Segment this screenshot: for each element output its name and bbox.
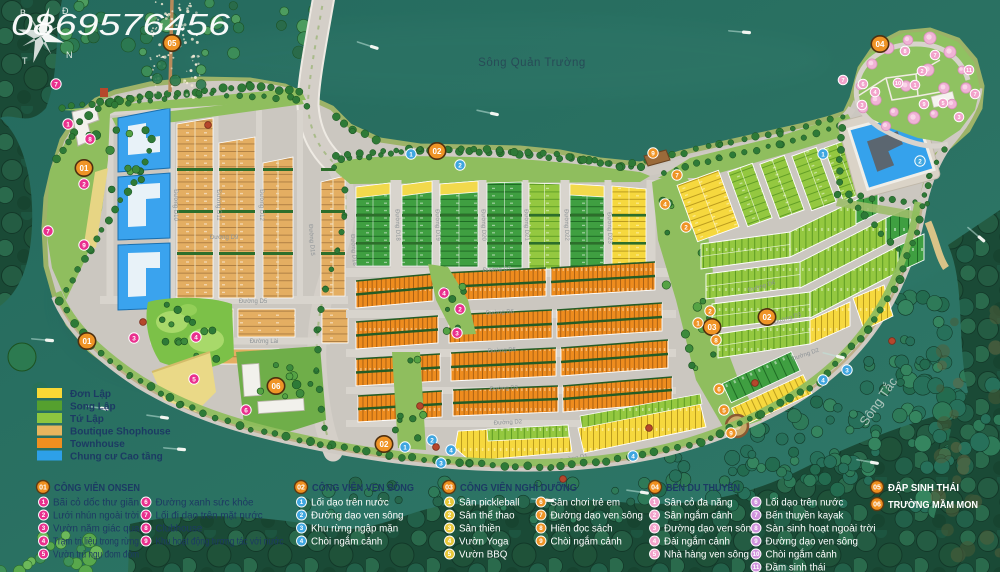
svg-text:3: 3 bbox=[653, 525, 657, 532]
svg-text:Đơn Lập: Đơn Lập bbox=[70, 389, 111, 400]
svg-text:2: 2 bbox=[458, 162, 462, 169]
svg-text:Sân chơi trẻ em: Sân chơi trẻ em bbox=[551, 498, 621, 509]
svg-text:8: 8 bbox=[144, 525, 148, 532]
svg-text:CÔNG VIÊN ONSEN: CÔNG VIÊN ONSEN bbox=[54, 481, 140, 494]
svg-text:8: 8 bbox=[903, 49, 906, 55]
svg-text:Vườn trú ngụ đom đóm: Vườn trú ngụ đom đóm bbox=[53, 550, 139, 561]
svg-text:3: 3 bbox=[957, 115, 960, 121]
svg-text:2: 2 bbox=[300, 512, 304, 519]
svg-text:3: 3 bbox=[455, 330, 459, 337]
svg-text:1: 1 bbox=[653, 499, 657, 506]
svg-text:01: 01 bbox=[80, 164, 89, 173]
svg-text:03: 03 bbox=[445, 485, 453, 492]
svg-text:2: 2 bbox=[918, 158, 922, 165]
svg-text:4: 4 bbox=[300, 538, 304, 545]
svg-text:2: 2 bbox=[653, 512, 657, 519]
svg-text:Đường D9: Đường D9 bbox=[210, 235, 239, 241]
svg-text:Đường D18: Đường D18 bbox=[393, 209, 400, 241]
svg-text:6: 6 bbox=[861, 82, 864, 88]
svg-text:02: 02 bbox=[763, 313, 772, 322]
svg-text:Đường Lài: Đường Lài bbox=[250, 339, 279, 345]
svg-text:Chòi ngắm cảnh: Chòi ngắm cảnh bbox=[551, 537, 622, 548]
svg-text:6: 6 bbox=[244, 407, 248, 414]
svg-text:6: 6 bbox=[539, 499, 543, 506]
svg-text:5: 5 bbox=[448, 551, 452, 558]
svg-text:Đường dạo ven sông: Đường dạo ven sông bbox=[551, 511, 644, 522]
svg-text:4: 4 bbox=[448, 538, 452, 545]
svg-text:04: 04 bbox=[651, 485, 659, 492]
svg-text:7: 7 bbox=[754, 512, 758, 519]
svg-text:Vườn Yoga: Vườn Yoga bbox=[459, 537, 509, 548]
svg-text:11: 11 bbox=[966, 68, 972, 74]
svg-text:3: 3 bbox=[439, 460, 443, 467]
svg-text:6: 6 bbox=[717, 386, 721, 393]
svg-text:1: 1 bbox=[403, 444, 407, 451]
svg-text:Lối dạo trên nước: Lối dạo trên nước bbox=[766, 498, 844, 509]
svg-text:10: 10 bbox=[753, 551, 760, 558]
svg-text:Sông Quản Trường: Sông Quản Trường bbox=[478, 57, 586, 69]
svg-text:Khu rừng ngập mặn: Khu rừng ngập mặn bbox=[311, 524, 398, 535]
svg-text:06: 06 bbox=[272, 382, 281, 391]
svg-text:Đài ngắm cảnh: Đài ngắm cảnh bbox=[664, 537, 730, 548]
svg-text:Chung cư Cao tầng: Chung cư Cao tầng bbox=[70, 451, 163, 463]
svg-text:9: 9 bbox=[754, 538, 758, 545]
svg-text:2: 2 bbox=[458, 306, 462, 313]
svg-text:3: 3 bbox=[860, 103, 863, 109]
svg-text:2: 2 bbox=[42, 512, 46, 519]
svg-text:Đường D22: Đường D22 bbox=[562, 209, 569, 241]
svg-text:9: 9 bbox=[144, 538, 148, 545]
svg-text:5: 5 bbox=[42, 551, 46, 558]
svg-text:Tứ Lập: Tứ Lập bbox=[70, 414, 104, 425]
svg-text:Chòi ngắm cảnh: Chòi ngắm cảnh bbox=[311, 537, 382, 548]
svg-text:03: 03 bbox=[708, 323, 717, 332]
svg-text:Vườn năm giác quan: Vườn năm giác quan bbox=[53, 524, 145, 535]
svg-text:4: 4 bbox=[442, 290, 446, 297]
svg-text:8: 8 bbox=[714, 337, 718, 344]
svg-text:5: 5 bbox=[941, 101, 944, 107]
svg-text:ĐẬP SINH THÁI: ĐẬP SINH THÁI bbox=[888, 481, 959, 494]
svg-text:8: 8 bbox=[539, 525, 543, 532]
svg-text:BẾN DU THUYỀN: BẾN DU THUYỀN bbox=[666, 481, 740, 494]
svg-text:04: 04 bbox=[876, 40, 885, 49]
svg-text:3: 3 bbox=[448, 525, 452, 532]
svg-text:3: 3 bbox=[300, 525, 304, 532]
svg-text:Sân cỏ đa năng: Sân cỏ đa năng bbox=[664, 498, 733, 509]
svg-text:TRƯỜNG MẦM MON: TRƯỜNG MẦM MON bbox=[888, 498, 978, 511]
svg-text:1: 1 bbox=[448, 499, 452, 506]
svg-text:7: 7 bbox=[144, 512, 148, 519]
svg-text:Clubhouse: Clubhouse bbox=[156, 524, 203, 535]
svg-text:2: 2 bbox=[448, 512, 452, 519]
svg-text:CÔNG VIÊN NGHỈ DƯỠNG: CÔNG VIÊN NGHỈ DƯỠNG bbox=[460, 481, 577, 494]
svg-text:N: N bbox=[66, 50, 73, 60]
svg-text:2: 2 bbox=[920, 69, 923, 75]
svg-text:Sàn sinh hoạt ngoài trời: Sàn sinh hoạt ngoài trời bbox=[766, 524, 876, 535]
svg-text:Sân thiền: Sân thiền bbox=[459, 524, 500, 535]
svg-text:05: 05 bbox=[873, 485, 881, 492]
svg-text:8: 8 bbox=[88, 136, 92, 143]
svg-text:Nhà hàng ven sông: Nhà hàng ven sông bbox=[664, 550, 749, 561]
svg-text:2: 2 bbox=[430, 437, 434, 444]
svg-text:7: 7 bbox=[539, 512, 543, 519]
svg-text:2: 2 bbox=[708, 308, 712, 315]
svg-text:Vườn BBQ: Vườn BBQ bbox=[459, 550, 508, 561]
svg-text:Đường dạo ven sông: Đường dạo ven sông bbox=[766, 537, 859, 548]
svg-text:02: 02 bbox=[380, 440, 389, 449]
svg-text:Đường D23: Đường D23 bbox=[605, 212, 612, 244]
svg-text:Song Lập: Song Lập bbox=[70, 402, 116, 413]
svg-text:02: 02 bbox=[297, 485, 305, 492]
svg-text:Boutique Shophouse: Boutique Shophouse bbox=[70, 427, 171, 438]
svg-text:5: 5 bbox=[192, 376, 196, 383]
svg-text:6: 6 bbox=[754, 499, 758, 506]
svg-text:3: 3 bbox=[132, 335, 136, 342]
svg-text:7: 7 bbox=[54, 81, 58, 88]
svg-text:Khu hoạt động tương tác với nư: Khu hoạt động tương tác với nước bbox=[156, 537, 284, 548]
svg-text:1: 1 bbox=[42, 499, 46, 506]
svg-text:Lưới nhún ngoài trời: Lưới nhún ngoài trời bbox=[53, 511, 139, 522]
svg-text:1: 1 bbox=[696, 320, 700, 327]
svg-text:Đường D11: Đường D11 bbox=[215, 189, 221, 221]
svg-text:Đầm sinh thái: Đầm sinh thái bbox=[766, 563, 826, 572]
svg-text:8: 8 bbox=[754, 525, 758, 532]
svg-text:T: T bbox=[22, 56, 28, 66]
svg-text:Sân ngắm cảnh: Sân ngắm cảnh bbox=[664, 511, 733, 522]
svg-text:4: 4 bbox=[631, 453, 635, 460]
svg-text:1: 1 bbox=[409, 151, 413, 158]
svg-text:2: 2 bbox=[684, 224, 688, 231]
svg-text:Đường D20: Đường D20 bbox=[479, 209, 486, 241]
svg-text:1: 1 bbox=[821, 151, 825, 158]
svg-text:7: 7 bbox=[675, 172, 679, 179]
svg-text:4: 4 bbox=[449, 447, 453, 454]
svg-text:Townhouse: Townhouse bbox=[70, 439, 125, 450]
svg-text:4: 4 bbox=[663, 201, 667, 208]
svg-text:7: 7 bbox=[933, 53, 936, 59]
svg-text:11: 11 bbox=[753, 564, 760, 571]
svg-text:Bãi cỏ dốc thư giãn: Bãi cỏ dốc thư giãn bbox=[53, 498, 139, 509]
svg-text:9: 9 bbox=[729, 430, 733, 437]
svg-text:9: 9 bbox=[82, 242, 86, 249]
svg-text:4: 4 bbox=[42, 538, 46, 545]
svg-text:01: 01 bbox=[39, 485, 47, 492]
svg-text:Đường xanh sức khỏe: Đường xanh sức khỏe bbox=[156, 498, 255, 509]
svg-text:Đường D19: Đường D19 bbox=[433, 209, 440, 241]
svg-text:1: 1 bbox=[913, 83, 916, 89]
svg-text:Đường D21: Đường D21 bbox=[522, 209, 529, 241]
svg-text:5: 5 bbox=[653, 551, 657, 558]
svg-text:Đường dạo ven sông: Đường dạo ven sông bbox=[664, 524, 757, 535]
svg-text:Sân thể thao: Sân thể thao bbox=[459, 511, 515, 522]
svg-text:4: 4 bbox=[653, 538, 657, 545]
svg-text:7: 7 bbox=[46, 228, 50, 235]
svg-text:Sân pickleball: Sân pickleball bbox=[459, 498, 519, 509]
svg-text:5: 5 bbox=[722, 407, 726, 414]
svg-text:Chòi ngắm cảnh: Chòi ngắm cảnh bbox=[766, 550, 837, 561]
svg-text:3: 3 bbox=[42, 525, 46, 532]
svg-text:6: 6 bbox=[144, 499, 148, 506]
svg-text:Đường D5: Đường D5 bbox=[239, 299, 268, 305]
svg-text:CÔNG VIÊN VEN SÔNG: CÔNG VIÊN VEN SÔNG bbox=[312, 481, 414, 494]
svg-text:Lối đi dạo trên mặt nước: Lối đi dạo trên mặt nước bbox=[156, 511, 263, 522]
svg-text:10: 10 bbox=[895, 81, 901, 87]
svg-text:Đường D10: Đường D10 bbox=[172, 189, 178, 221]
svg-text:1: 1 bbox=[300, 499, 304, 506]
svg-text:0869576456: 0869576456 bbox=[11, 7, 231, 42]
svg-text:Đường D12: Đường D12 bbox=[258, 189, 264, 221]
svg-text:Bến thuyền kayak: Bến thuyền kayak bbox=[766, 511, 844, 522]
svg-text:06: 06 bbox=[873, 502, 881, 509]
svg-text:4: 4 bbox=[821, 377, 825, 384]
svg-text:9: 9 bbox=[922, 102, 925, 108]
svg-text:9: 9 bbox=[539, 538, 543, 545]
svg-text:1: 1 bbox=[66, 121, 70, 128]
svg-text:Hiên đọc sách: Hiên đọc sách bbox=[551, 524, 613, 535]
svg-text:3: 3 bbox=[845, 367, 849, 374]
svg-text:2: 2 bbox=[82, 181, 86, 188]
svg-text:Trạm trị liệu trong rừng: Trạm trị liệu trong rừng bbox=[53, 537, 139, 548]
svg-text:7: 7 bbox=[973, 92, 976, 98]
svg-text:9: 9 bbox=[651, 150, 655, 157]
svg-text:Lối dạo trên nước: Lối dạo trên nước bbox=[311, 498, 389, 509]
svg-text:02: 02 bbox=[433, 147, 442, 156]
svg-text:01: 01 bbox=[83, 337, 92, 346]
svg-text:Đường dạo ven sông: Đường dạo ven sông bbox=[311, 511, 404, 522]
svg-text:7: 7 bbox=[841, 78, 844, 84]
svg-text:4: 4 bbox=[194, 334, 198, 341]
